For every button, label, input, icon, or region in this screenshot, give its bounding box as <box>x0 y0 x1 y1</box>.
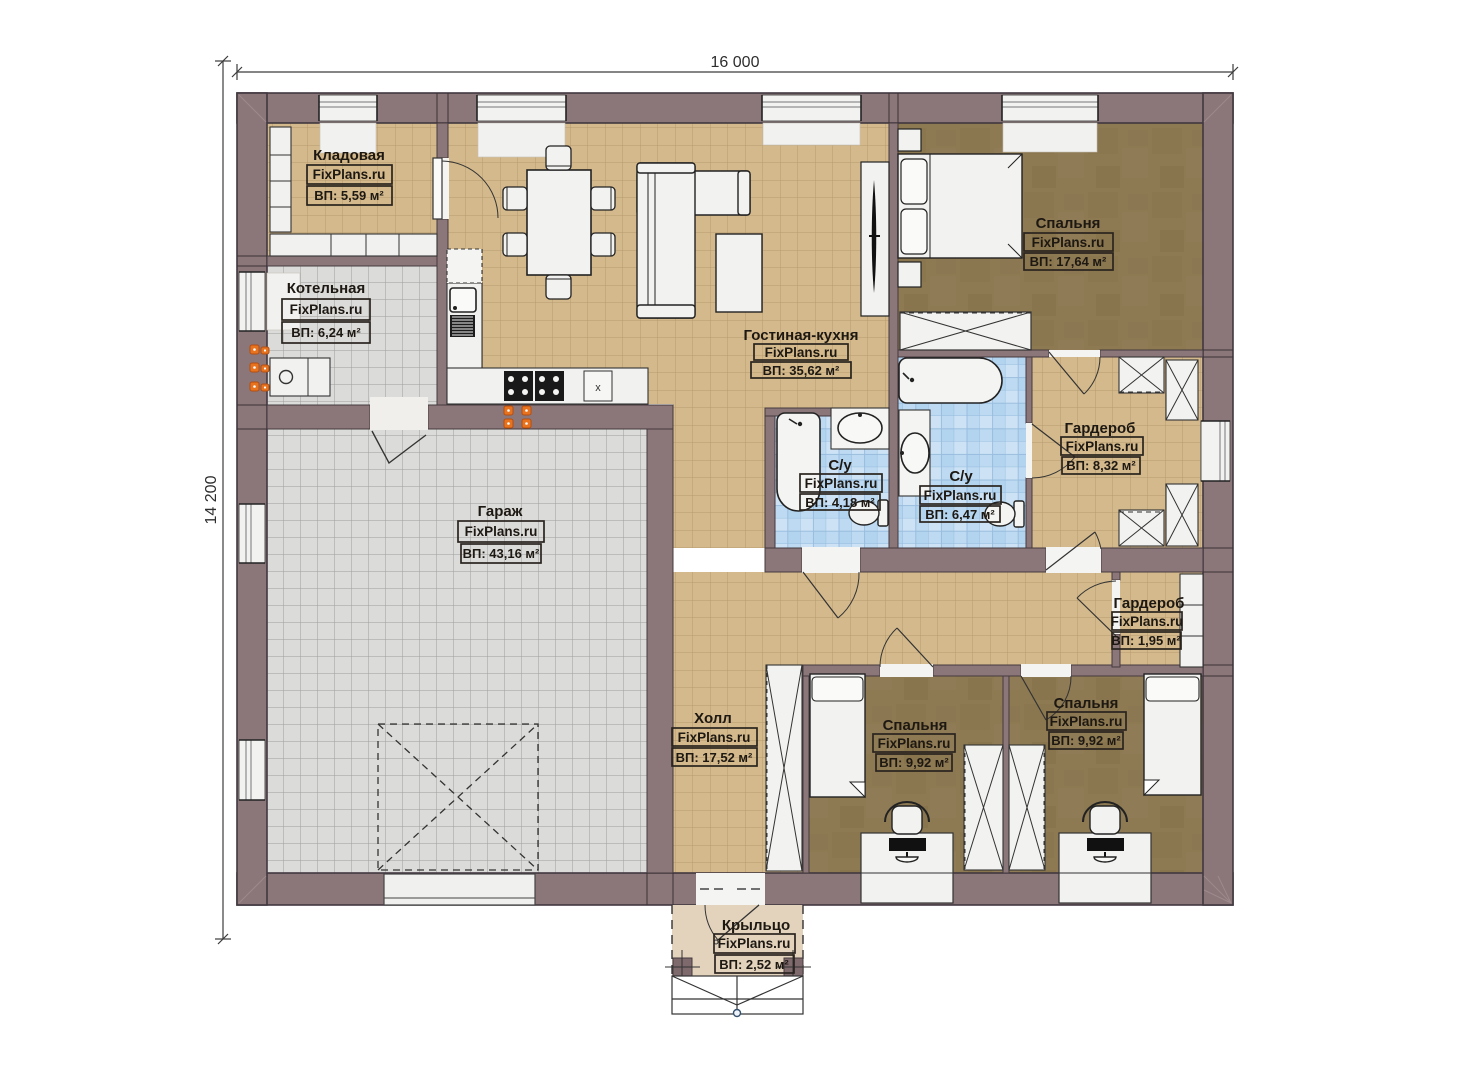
svg-text:FixPlans.ru: FixPlans.ru <box>313 167 386 182</box>
svg-text:FixPlans.ru: FixPlans.ru <box>1032 235 1105 250</box>
svg-text:16 000: 16 000 <box>711 54 760 71</box>
svg-text:FixPlans.ru: FixPlans.ru <box>1111 614 1184 629</box>
svg-text:x: x <box>595 382 601 394</box>
svg-text:Холл: Холл <box>694 710 732 727</box>
svg-text:FixPlans.ru: FixPlans.ru <box>1050 714 1123 729</box>
svg-text:FixPlans.ru: FixPlans.ru <box>290 302 363 317</box>
svg-text:ВП: 17,52 м²: ВП: 17,52 м² <box>676 750 753 765</box>
svg-text:ВП: 4,18 м²: ВП: 4,18 м² <box>805 495 875 510</box>
svg-text:Спальня: Спальня <box>1036 215 1101 232</box>
svg-text:Спальня: Спальня <box>1054 695 1119 712</box>
svg-text:ВП: 8,32 м²: ВП: 8,32 м² <box>1066 458 1136 473</box>
svg-text:ВП: 43,16 м²: ВП: 43,16 м² <box>463 546 540 561</box>
svg-text:Спальня: Спальня <box>883 717 948 734</box>
svg-text:ВП: 9,92 м²: ВП: 9,92 м² <box>1051 733 1121 748</box>
svg-text:Гардероб: Гардероб <box>1114 595 1185 612</box>
svg-text:С/у: С/у <box>828 457 852 474</box>
svg-text:FixPlans.ru: FixPlans.ru <box>805 476 878 491</box>
svg-text:Крыльцо: Крыльцо <box>722 917 790 934</box>
svg-text:ВП: 35,62 м²: ВП: 35,62 м² <box>763 363 840 378</box>
svg-text:ВП: 6,47 м²: ВП: 6,47 м² <box>925 507 995 522</box>
svg-text:ВП: 6,24 м²: ВП: 6,24 м² <box>291 325 361 340</box>
svg-text:FixPlans.ru: FixPlans.ru <box>718 936 791 951</box>
svg-text:FixPlans.ru: FixPlans.ru <box>1066 439 1139 454</box>
svg-text:Гардероб: Гардероб <box>1065 420 1136 437</box>
svg-text:Котельная: Котельная <box>287 280 366 297</box>
svg-text:С/у: С/у <box>949 468 973 485</box>
svg-text:ВП: 17,64 м²: ВП: 17,64 м² <box>1030 254 1107 269</box>
svg-text:Кладовая: Кладовая <box>313 147 385 164</box>
svg-text:Гостиная-кухня: Гостиная-кухня <box>744 327 859 344</box>
svg-text:FixPlans.ru: FixPlans.ru <box>765 345 838 360</box>
svg-text:ВП: 2,52 м²: ВП: 2,52 м² <box>719 957 789 972</box>
svg-text:ВП: 1,95 м²: ВП: 1,95 м² <box>1111 633 1181 648</box>
svg-text:FixPlans.ru: FixPlans.ru <box>678 730 751 745</box>
svg-text:14 200: 14 200 <box>203 475 220 524</box>
svg-text:FixPlans.ru: FixPlans.ru <box>924 488 997 503</box>
svg-text:ВП: 9,92 м²: ВП: 9,92 м² <box>879 755 949 770</box>
svg-text:ВП: 5,59 м²: ВП: 5,59 м² <box>314 188 384 203</box>
svg-text:Гараж: Гараж <box>478 503 523 520</box>
svg-text:FixPlans.ru: FixPlans.ru <box>465 524 538 539</box>
svg-text:FixPlans.ru: FixPlans.ru <box>878 736 951 751</box>
